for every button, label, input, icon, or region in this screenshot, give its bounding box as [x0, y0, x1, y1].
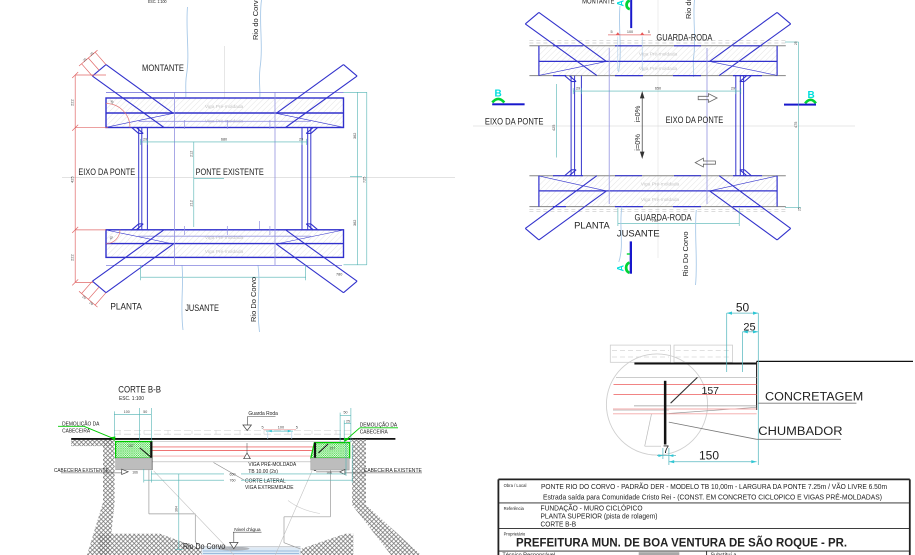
svg-text:7: 7 [663, 444, 669, 456]
svg-text:157: 157 [330, 446, 336, 450]
svg-text:Rio Do Corvo: Rio Do Corvo [183, 542, 226, 551]
svg-text:362: 362 [353, 220, 357, 226]
svg-text:25: 25 [743, 322, 755, 334]
svg-text:150: 150 [699, 449, 719, 463]
svg-text:29: 29 [731, 87, 735, 91]
svg-text:Rio do Corvo: Rio do Corvo [251, 0, 260, 40]
svg-text:EIXO DA PONTE: EIXO DA PONTE [666, 115, 724, 125]
svg-text:MONTANTE: MONTANTE [582, 0, 615, 5]
svg-text:5: 5 [296, 426, 298, 430]
svg-text:680: 680 [221, 137, 227, 141]
svg-text:5: 5 [648, 30, 650, 34]
svg-text:5: 5 [610, 30, 612, 34]
svg-text:100: 100 [124, 410, 130, 414]
svg-text:725: 725 [363, 177, 367, 183]
svg-text:Rio Do Corvo: Rio Do Corvo [681, 231, 690, 276]
svg-text:650: 650 [230, 472, 236, 476]
svg-text:PONTE RIO DO CORVO - PADRÃO DE: PONTE RIO DO CORVO - PADRÃO DER - MODELO… [541, 482, 887, 491]
svg-text:GUARDA-RODA: GUARDA-RODA [656, 33, 712, 43]
svg-text:JUSANTE: JUSANTE [617, 229, 660, 239]
svg-text:Viga Pré-moldada: Viga Pré-moldada [639, 52, 678, 58]
svg-text:425: 425 [70, 176, 75, 183]
svg-text:FUNDAÇÃO - MURO CICLÓPICO: FUNDAÇÃO - MURO CICLÓPICO [541, 503, 644, 512]
svg-text:Viga Pré-moldada: Viga Pré-moldada [205, 104, 244, 110]
svg-text:CONCRETAGEM: CONCRETAGEM [765, 390, 863, 404]
svg-text:PLANTA: PLANTA [574, 221, 610, 231]
svg-text:Rio do Corvo: Rio do Corvo [684, 0, 693, 19]
svg-text:166: 166 [132, 470, 138, 474]
svg-text:Proprietário: Proprietário [504, 532, 526, 537]
svg-text:CHUMBADOR: CHUMBADOR [758, 424, 842, 438]
svg-text:CABECEIRA: CABECEIRA [62, 428, 91, 434]
svg-text:50: 50 [344, 411, 348, 415]
svg-text:JUSANTE: JUSANTE [185, 303, 219, 313]
svg-text:PREFEITURA MUN. DE BOA VENTURA: PREFEITURA MUN. DE BOA VENTURA DE SÃO RO… [516, 537, 847, 550]
svg-text:25: 25 [798, 207, 802, 211]
svg-text:i=0%: i=0% [633, 134, 642, 151]
svg-text:425: 425 [552, 125, 556, 131]
svg-text:100: 100 [627, 30, 633, 34]
svg-text:Viga Pré-moldada: Viga Pré-moldada [205, 235, 244, 241]
svg-text:100: 100 [278, 426, 284, 430]
svg-text:50: 50 [736, 301, 750, 315]
svg-text:CORTE B-B: CORTE B-B [118, 385, 161, 396]
svg-text:A: A [615, 0, 625, 7]
svg-text:PLANTA: PLANTA [110, 302, 142, 312]
svg-text:Rio Do Corvo: Rio Do Corvo [249, 277, 258, 322]
svg-text:Viga Pré-moldada: Viga Pré-moldada [639, 66, 678, 72]
svg-text:650: 650 [655, 87, 661, 91]
svg-text:212: 212 [189, 200, 193, 206]
svg-text:ESC. 1:100: ESC. 1:100 [119, 396, 144, 402]
svg-text:780: 780 [336, 273, 342, 277]
svg-text:157: 157 [702, 385, 720, 397]
svg-text:Referência: Referência [504, 506, 525, 511]
svg-text:5: 5 [262, 426, 264, 430]
svg-text:Guarda Roda: Guarda Roda [248, 411, 278, 417]
svg-text:A: A [615, 265, 625, 272]
svg-text:362: 362 [353, 133, 357, 139]
svg-text:29: 29 [299, 137, 303, 141]
svg-text:50: 50 [143, 410, 147, 414]
svg-text:222: 222 [70, 254, 75, 261]
svg-text:MONTANTE: MONTANTE [142, 63, 184, 73]
svg-text:PLANTA SUPERIOR (pista de rola: PLANTA SUPERIOR (pista de rolagem) [541, 514, 658, 521]
svg-text:475: 475 [794, 122, 798, 128]
svg-text:364: 364 [174, 506, 178, 512]
svg-text:212: 212 [189, 151, 193, 157]
svg-text:EIXO DA PONTE: EIXO DA PONTE [78, 167, 135, 177]
svg-text:CORTE B-B: CORTE B-B [541, 521, 577, 528]
svg-text:Estrada saída para Comunidade: Estrada saída para Comunidade Cristo Rei… [543, 492, 882, 501]
svg-text:29: 29 [143, 137, 147, 141]
svg-text:222: 222 [70, 99, 75, 106]
svg-text:EIXO DA PONTE: EIXO DA PONTE [485, 117, 544, 127]
svg-text:CORTE LATERAL: CORTE LATERAL [245, 479, 286, 485]
svg-text:PONTE EXISTENTE: PONTE EXISTENTE [196, 167, 264, 177]
svg-text:VIGA EXTREMIDADE: VIGA EXTREMIDADE [245, 485, 294, 491]
svg-text:i=0%: i=0% [633, 105, 642, 122]
svg-text:25: 25 [794, 41, 798, 45]
svg-text:25: 25 [346, 419, 350, 423]
svg-text:VIGA PRÉ-MOLDADA: VIGA PRÉ-MOLDADA [248, 461, 296, 468]
svg-text:Obra / Local: Obra / Local [504, 483, 527, 488]
svg-text:760: 760 [230, 479, 236, 483]
svg-text:29: 29 [576, 87, 580, 91]
svg-text:GUARDA-RODA: GUARDA-RODA [635, 213, 692, 223]
svg-text:Viga Pré-moldada: Viga Pré-moldada [205, 249, 244, 255]
svg-text:ESC. 1:100: ESC. 1:100 [148, 0, 167, 4]
svg-text:Viga Pré-moldada: Viga Pré-moldada [641, 197, 680, 203]
svg-text:Viga Pré-moldada: Viga Pré-moldada [641, 182, 680, 188]
svg-text:157: 157 [128, 444, 134, 448]
svg-text:CABECEIRA: CABECEIRA [360, 429, 389, 435]
